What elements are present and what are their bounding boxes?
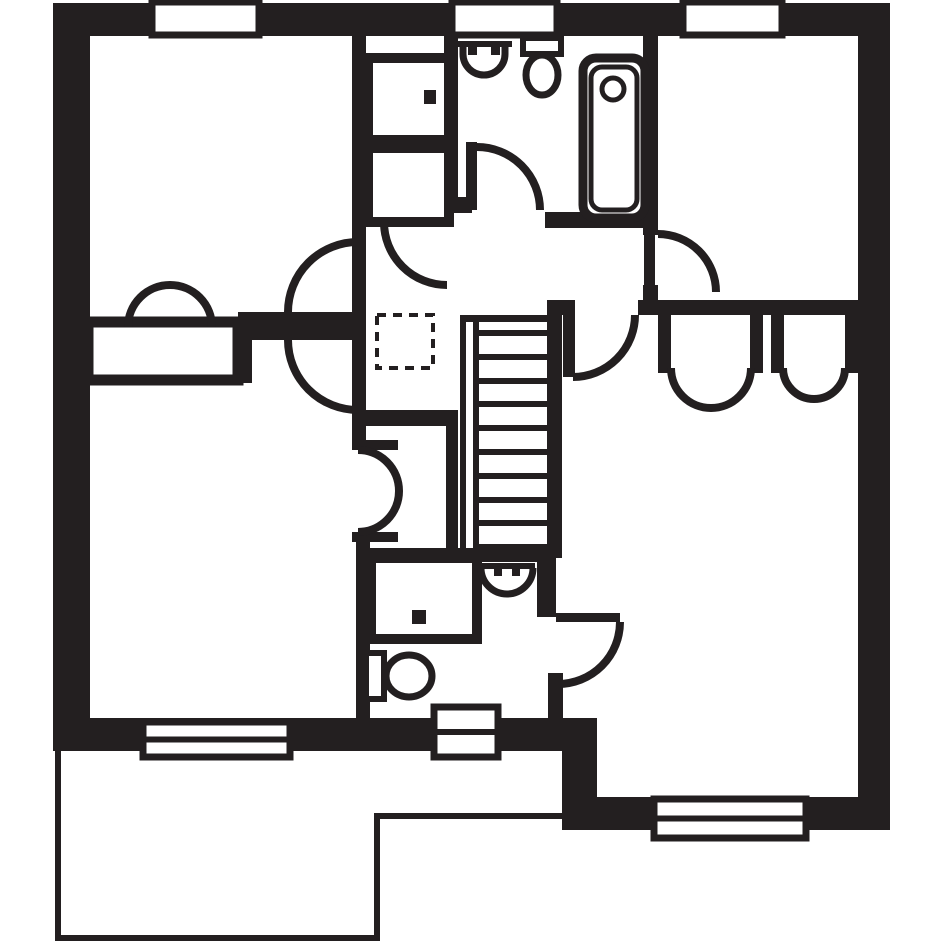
ensuite-toilet-cistern [366, 653, 384, 699]
bedroom3-door-arc [288, 340, 358, 410]
bathroom-toilet-bowl [526, 55, 558, 95]
window-top-left [152, 2, 259, 35]
ensuite-door-arc [558, 622, 620, 684]
stairs-right-wall [547, 300, 562, 558]
stair-tread [479, 473, 547, 479]
ensuite-sink-tap-right [512, 568, 520, 576]
cylinder-dot [424, 90, 436, 104]
landing-cupboard-box [368, 148, 449, 222]
stair-tread [479, 449, 547, 455]
bottom-wall-west [53, 718, 597, 751]
bedroom-tr-door-arc [658, 234, 716, 292]
floor-plan-page [0, 0, 945, 945]
bedroom-tr-door-leaf [644, 232, 655, 292]
stair-tread [479, 497, 547, 503]
cupboard-door-arc [384, 222, 447, 285]
bedroom1-door-leaf [563, 315, 575, 377]
bedroom2-door-arc [288, 242, 358, 312]
lower-roof-right-line [374, 815, 380, 941]
ensuite-door-leaf [556, 613, 620, 622]
loft-hatch [377, 315, 433, 368]
ensuite-door-stub [548, 673, 563, 718]
window-top-right [683, 2, 782, 35]
wardrobe-jamb-d [845, 315, 858, 373]
bedroom2-bedroom3-wall [238, 312, 366, 340]
stairs-left-outer-rail [460, 315, 466, 558]
bedroom1-wardrobe2-arc-left [783, 368, 814, 399]
wardrobe-jamb-b [750, 315, 763, 373]
stair-tread [479, 425, 547, 431]
shower-handle-dot [412, 610, 426, 624]
stair-tread [479, 354, 547, 360]
stair-tread [479, 378, 547, 384]
wardrobe-jamb-c [771, 315, 784, 373]
stair-tread [479, 401, 547, 407]
bedroom2-wardrobe-box [88, 322, 238, 380]
bathroom-door-arc [477, 147, 540, 210]
wardrobe-jamb-a [658, 315, 671, 373]
bathroom-sink-tap-right [491, 46, 500, 55]
shower-enclosure-box [371, 558, 477, 639]
stair-tread [479, 544, 547, 550]
bedroom1-wardrobe2-arc-right [814, 368, 845, 399]
bedrooms-divider-wall [638, 300, 890, 315]
bedroom1-door-arc [573, 315, 635, 377]
closet-door-arc-top [358, 450, 399, 491]
stair-tread [479, 520, 547, 526]
lower-roof-top-line [374, 813, 562, 819]
ensuite-sink-bowl [481, 568, 533, 594]
ensuite-east-wall [537, 548, 556, 617]
landing-wall-stub [555, 300, 575, 315]
floor-plan-drawing [0, 0, 945, 945]
bathtub-drain [602, 78, 624, 100]
lower-roof-left-line [55, 751, 61, 941]
bedroom1-wardrobe1-arc-left [671, 368, 711, 408]
closet-right-wall [446, 410, 458, 556]
lower-roof-bottom-line [55, 935, 380, 941]
right-wall [858, 3, 890, 830]
stairs-left-inner-rail [473, 315, 479, 558]
closet-top-wall [352, 410, 458, 426]
stair-tread [479, 330, 547, 336]
closet-door-arc-bottom [358, 491, 399, 532]
ensuite-toilet-bowl [386, 655, 432, 697]
bedroom1-wardrobe1-arc-right [711, 368, 751, 408]
bathroom-sink-tap-left [468, 46, 477, 55]
bathroom-door-leaf [466, 142, 477, 210]
ensuite-sink-tap-left [494, 568, 502, 576]
window-top-middle [452, 2, 557, 35]
airing-cupboard-box [368, 58, 449, 140]
